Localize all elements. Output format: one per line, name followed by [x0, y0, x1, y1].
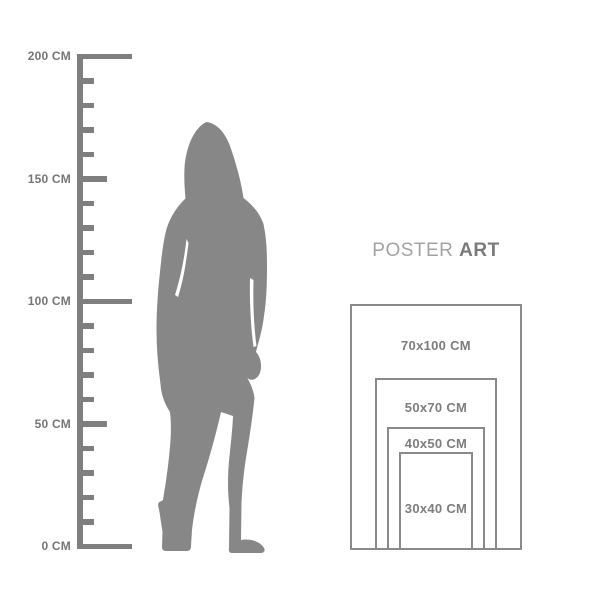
- ruler-tick-120cm: [77, 250, 94, 256]
- ruler-label-200cm: 200 CM: [6, 48, 71, 64]
- poster-size-label-30x40: 30x40 CM: [366, 501, 506, 517]
- ruler-tick-140cm: [77, 201, 94, 207]
- ruler-label-0cm: 0 CM: [6, 538, 71, 554]
- ruler-tick-0cm: [77, 544, 132, 550]
- ruler-label-150cm: 150 CM: [6, 171, 71, 187]
- ruler-tick-10cm: [77, 519, 94, 525]
- ruler-tick-180cm: [77, 103, 94, 109]
- ruler-tick-150cm: [77, 176, 107, 182]
- ruler-label-50cm: 50 CM: [6, 416, 71, 432]
- poster-size-label-70x100: 70x100 CM: [366, 338, 506, 354]
- ruler-tick-30cm: [77, 470, 94, 476]
- ruler-label-100cm: 100 CM: [6, 293, 71, 309]
- poster-size-label-50x70: 50x70 CM: [366, 400, 506, 416]
- woman-silhouette-body: [157, 122, 268, 553]
- title-word-art: ART: [459, 240, 500, 261]
- title-word-poster: POSTER: [372, 240, 453, 261]
- ruler-tick-110cm: [77, 274, 94, 280]
- chart-title: POSTER ART: [350, 240, 522, 262]
- ruler-tick-60cm: [77, 397, 94, 403]
- ruler-tick-70cm: [77, 372, 94, 378]
- height-ruler: 200 CM150 CM100 CM50 CM0 CM: [0, 0, 150, 600]
- poster-size-label-40x50: 40x50 CM: [366, 436, 506, 452]
- ruler-tick-20cm: [77, 495, 94, 501]
- woman-silhouette: [150, 115, 290, 560]
- ruler-tick-130cm: [77, 225, 94, 231]
- ruler-tick-100cm: [77, 299, 132, 305]
- ruler-tick-160cm: [77, 152, 94, 158]
- ruler-tick-170cm: [77, 127, 94, 133]
- poster-size-chart: 70x100 CM50x70 CM40x50 CM30x40 CM: [340, 295, 540, 560]
- ruler-tick-190cm: [77, 78, 94, 84]
- ruler-tick-40cm: [77, 446, 94, 452]
- ruler-tick-90cm: [77, 323, 94, 329]
- ruler-tick-200cm: [77, 54, 132, 60]
- ruler-tick-50cm: [77, 421, 107, 427]
- ruler-tick-80cm: [77, 348, 94, 354]
